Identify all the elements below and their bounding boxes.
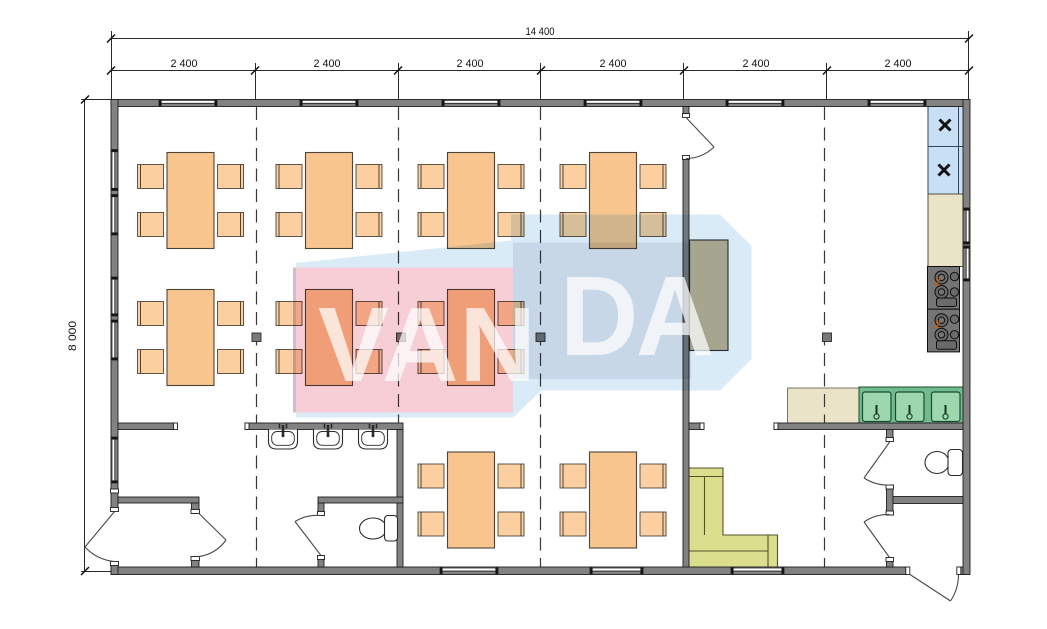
svg-text:2 400: 2 400 <box>600 58 627 70</box>
svg-text:2 400: 2 400 <box>743 58 770 70</box>
svg-text:Fe: Fe <box>933 320 942 329</box>
svg-text:2 400: 2 400 <box>885 58 912 70</box>
svg-text:DA: DA <box>560 254 712 379</box>
svg-text:2 400: 2 400 <box>457 58 484 70</box>
svg-text:VAN: VAN <box>318 286 537 404</box>
svg-text:Fe: Fe <box>933 277 942 286</box>
svg-text:2 400: 2 400 <box>171 58 198 70</box>
svg-text:14 400: 14 400 <box>526 26 555 38</box>
svg-text:2 400: 2 400 <box>314 58 341 70</box>
svg-text:8 000: 8 000 <box>67 321 79 351</box>
